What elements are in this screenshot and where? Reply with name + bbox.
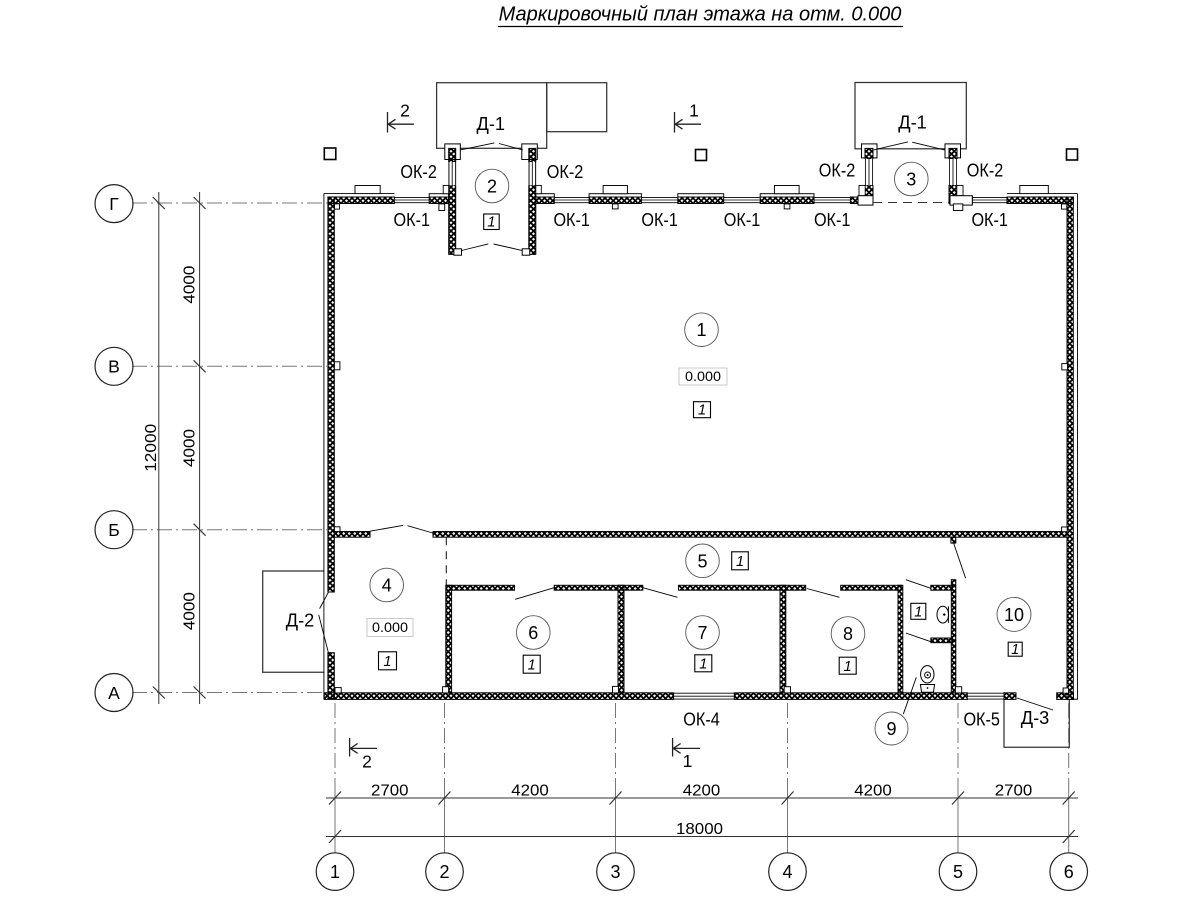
svg-text:ОК-1: ОК-1 <box>971 210 1008 230</box>
svg-text:Д-1: Д-1 <box>477 114 506 134</box>
svg-text:4000: 4000 <box>181 592 198 630</box>
svg-text:2: 2 <box>487 177 497 197</box>
svg-text:2700: 2700 <box>371 782 409 799</box>
svg-text:12000: 12000 <box>143 424 160 472</box>
svg-text:ОК-4: ОК-4 <box>683 710 720 730</box>
svg-text:8: 8 <box>843 624 853 644</box>
svg-text:3: 3 <box>610 862 620 882</box>
svg-text:3: 3 <box>906 170 916 190</box>
svg-text:ОК-2: ОК-2 <box>400 162 437 182</box>
svg-text:ОК-1: ОК-1 <box>394 210 431 230</box>
svg-text:1: 1 <box>683 751 693 771</box>
svg-text:ОК-2: ОК-2 <box>967 161 1004 181</box>
svg-text:А: А <box>108 683 120 703</box>
svg-text:18000: 18000 <box>676 821 723 838</box>
svg-text:ОК-1: ОК-1 <box>814 210 851 230</box>
svg-text:0.000: 0.000 <box>685 368 721 384</box>
svg-text:1: 1 <box>1011 642 1019 658</box>
svg-text:1: 1 <box>914 604 922 620</box>
svg-text:ОК-1: ОК-1 <box>553 210 590 230</box>
svg-text:2: 2 <box>400 101 410 121</box>
svg-text:1: 1 <box>487 215 495 231</box>
svg-text:2: 2 <box>439 862 449 882</box>
svg-text:5: 5 <box>953 862 963 882</box>
svg-text:Д-1: Д-1 <box>898 113 927 133</box>
svg-text:Маркировочный план этажа на от: Маркировочный план этажа на отм. 0.000 <box>499 4 902 26</box>
svg-text:1: 1 <box>383 654 391 670</box>
svg-text:10: 10 <box>1004 605 1024 625</box>
svg-text:2: 2 <box>362 752 372 772</box>
svg-text:6: 6 <box>1064 862 1074 882</box>
svg-text:4200: 4200 <box>511 782 549 799</box>
svg-text:9: 9 <box>886 719 896 739</box>
svg-text:7: 7 <box>697 623 707 643</box>
svg-text:4: 4 <box>782 862 792 882</box>
svg-text:В: В <box>108 357 120 377</box>
svg-text:ОК-2: ОК-2 <box>819 161 856 181</box>
svg-text:1: 1 <box>330 862 340 882</box>
svg-text:ОК-1: ОК-1 <box>724 210 761 230</box>
svg-text:1: 1 <box>698 403 706 419</box>
svg-text:Д-2: Д-2 <box>286 611 315 631</box>
svg-text:0.000: 0.000 <box>372 619 408 635</box>
svg-text:1: 1 <box>844 659 852 675</box>
svg-text:1: 1 <box>689 101 699 121</box>
svg-text:4: 4 <box>382 576 392 596</box>
svg-text:Г: Г <box>109 194 119 214</box>
svg-text:ОК-5: ОК-5 <box>963 709 1000 729</box>
svg-text:1: 1 <box>736 554 744 570</box>
svg-text:1: 1 <box>699 657 707 673</box>
svg-text:4200: 4200 <box>854 782 892 799</box>
svg-text:Б: Б <box>108 520 119 540</box>
svg-text:ОК-2: ОК-2 <box>547 162 584 182</box>
svg-text:2700: 2700 <box>995 782 1033 799</box>
svg-text:Д-3: Д-3 <box>1021 708 1050 728</box>
svg-text:1: 1 <box>528 657 536 673</box>
svg-text:4000: 4000 <box>181 265 198 303</box>
svg-text:4000: 4000 <box>181 429 198 467</box>
svg-text:1: 1 <box>696 320 706 340</box>
svg-text:4200: 4200 <box>683 782 721 799</box>
svg-text:6: 6 <box>528 623 538 643</box>
svg-text:5: 5 <box>697 551 707 571</box>
svg-text:ОК-1: ОК-1 <box>641 210 678 230</box>
